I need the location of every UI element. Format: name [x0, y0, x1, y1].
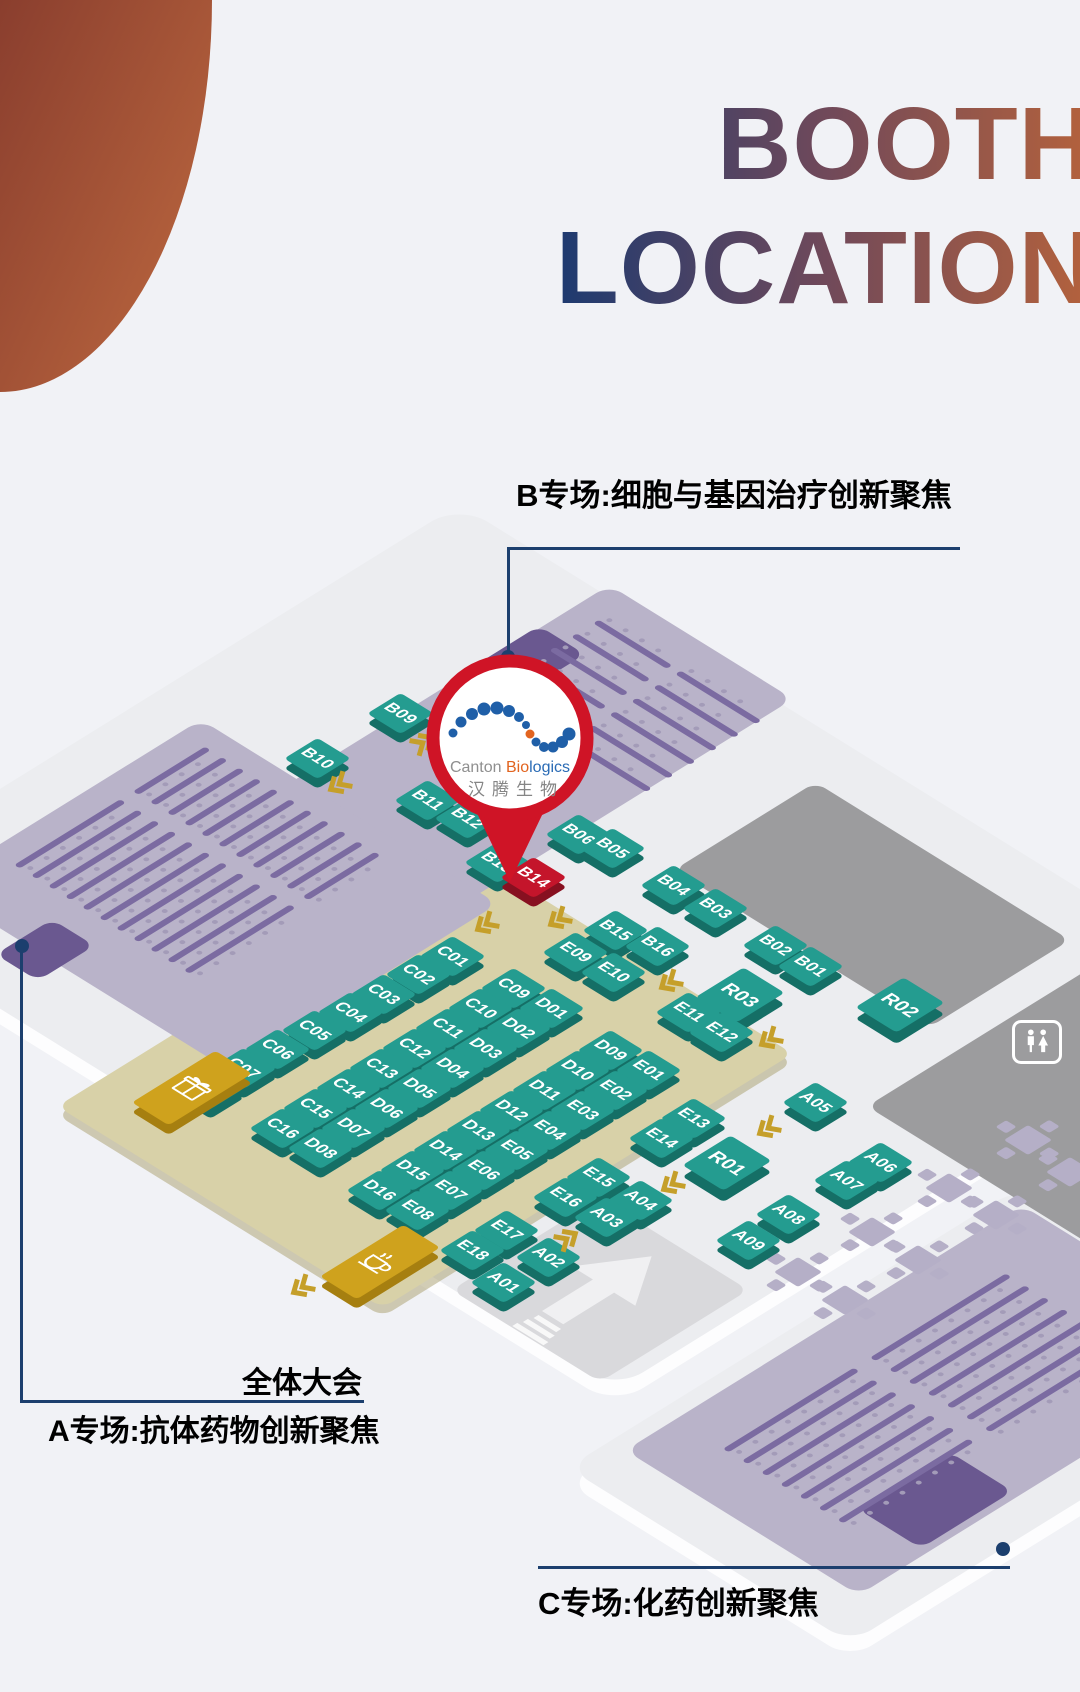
booth-label: A03 — [584, 1204, 627, 1231]
booth-label: D15 — [390, 1157, 433, 1184]
booth-label: C15 — [293, 1095, 336, 1122]
booth-label: C10 — [458, 995, 501, 1022]
booth-label: D08 — [298, 1135, 341, 1162]
booth-label: D12 — [489, 1097, 532, 1124]
title-line-1: BOOTH — [556, 82, 1080, 206]
booth-label: B03 — [693, 895, 736, 922]
leader-b-v — [507, 547, 510, 657]
booth-label: B01 — [788, 953, 831, 980]
booth-label: E12 — [700, 1019, 742, 1045]
booth-label: D11 — [523, 1077, 565, 1103]
booth-label: E11 — [667, 999, 709, 1025]
booth-label: E02 — [594, 1077, 636, 1103]
booth-label: D13 — [456, 1117, 499, 1144]
booth-label: E16 — [544, 1184, 586, 1210]
booth-label: E17 — [485, 1217, 527, 1243]
booth-label: A09 — [726, 1227, 769, 1254]
booth-label: D14 — [423, 1137, 466, 1164]
booth-location-poster: BOOTH LOCATION B09B10B11B12B06B05B13B14B… — [0, 0, 1080, 1692]
booth-label: E04 — [528, 1117, 570, 1143]
booth-label: D02 — [496, 1015, 539, 1042]
page-title: BOOTH LOCATION — [556, 82, 1080, 329]
booth-label: C05 — [292, 1017, 335, 1044]
booth-label: C04 — [328, 999, 371, 1026]
booth-label: D16 — [357, 1177, 400, 1204]
booth-label: B10 — [295, 745, 338, 772]
leader-c-dot — [996, 1542, 1010, 1556]
booth-label: B04 — [651, 872, 694, 899]
booth-label: C16 — [260, 1115, 303, 1142]
booth-label: C09 — [491, 975, 534, 1002]
booth-label: E01 — [627, 1057, 669, 1083]
booth-label: D10 — [555, 1057, 598, 1084]
label-plenary: 全体大会 — [40, 1358, 362, 1402]
booth-label: B15 — [593, 917, 636, 944]
booth-label: E18 — [451, 1237, 493, 1263]
leader-a-dot — [15, 939, 29, 953]
booth-label: C02 — [396, 961, 439, 988]
booth-label: R01 — [702, 1148, 752, 1179]
booth-label: R02 — [875, 990, 925, 1021]
booth-label: C11 — [426, 1015, 468, 1041]
booth-label: E15 — [577, 1164, 619, 1190]
booth-label: E09 — [554, 939, 596, 965]
leader-b-h — [508, 547, 960, 550]
booth-label: B02 — [753, 932, 796, 959]
label-hall-b: B专场:细胞与基因治疗创新聚焦 — [508, 470, 960, 515]
pin-company-cn: 汉腾生物 — [468, 780, 564, 799]
booth-label: A01 — [481, 1269, 524, 1296]
booth-label: A08 — [766, 1201, 809, 1228]
booth-label: D09 — [588, 1037, 631, 1064]
company-location-pin: Canton Biologics 汉腾生物 — [420, 648, 600, 888]
booth-label: B09 — [378, 700, 421, 727]
booth-label: C13 — [359, 1055, 402, 1082]
leader-c-h — [538, 1566, 1010, 1569]
booth-label: E08 — [396, 1197, 438, 1223]
booth-label: D04 — [430, 1055, 473, 1082]
booth-label: D01 — [529, 995, 572, 1022]
booth-label: D03 — [463, 1035, 506, 1062]
booth-label: E10 — [592, 959, 634, 985]
booth-label: A07 — [824, 1167, 867, 1194]
label-hall-c: C专场:化药创新聚焦 — [538, 1578, 819, 1623]
booth-label: D07 — [331, 1115, 374, 1142]
label-hall-a: A专场:抗体药物创新聚焦 — [48, 1406, 380, 1450]
booth-label: E05 — [495, 1137, 537, 1163]
booth-label: E06 — [462, 1157, 504, 1183]
booth-label: C12 — [392, 1035, 435, 1062]
booth-label: E14 — [640, 1125, 682, 1151]
booth-label: R03 — [715, 980, 765, 1011]
booth-label: E07 — [429, 1177, 471, 1203]
leader-a-v — [20, 946, 23, 1402]
booth-label: D06 — [364, 1095, 407, 1122]
booth-label: A05 — [793, 1089, 836, 1116]
flow-arrow-icon — [282, 1267, 318, 1304]
booth-label: C14 — [326, 1075, 369, 1102]
gift-icon — [166, 1072, 218, 1104]
booth-label: D05 — [397, 1075, 440, 1102]
title-line-2: LOCATION — [556, 206, 1080, 330]
booth-label: E03 — [561, 1097, 603, 1123]
booth-label: B16 — [635, 933, 678, 960]
pin-company-en: Canton Biologics — [450, 759, 570, 776]
restroom-icon — [1012, 1020, 1062, 1064]
